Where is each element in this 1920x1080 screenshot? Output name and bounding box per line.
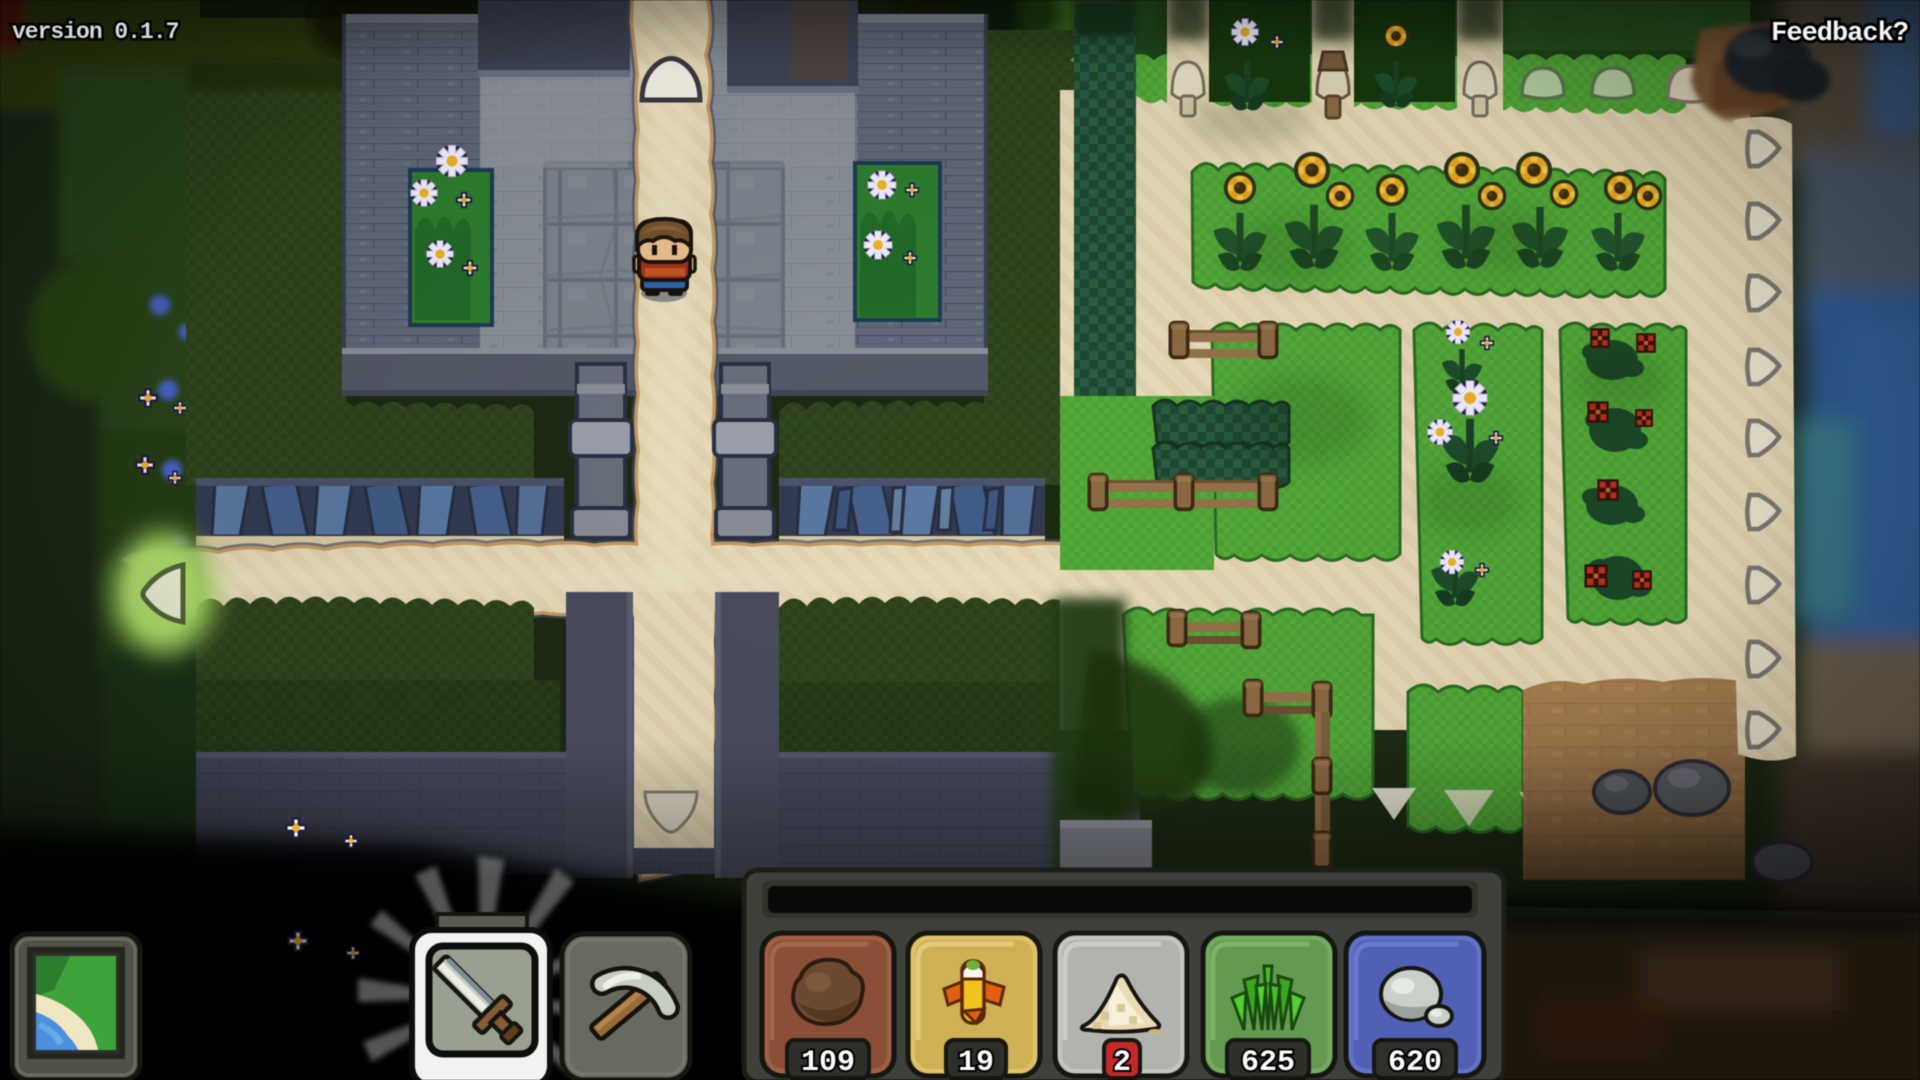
svg-text:19: 19 [958,1046,994,1080]
svg-text:625: 625 [1241,1046,1295,1080]
svg-text:Feedback?: Feedback? [1771,19,1908,49]
svg-text:2: 2 [1113,1046,1131,1080]
svg-text:109: 109 [801,1046,855,1080]
svg-text:620: 620 [1388,1046,1442,1080]
svg-text:version 0.1.7: version 0.1.7 [12,19,179,45]
